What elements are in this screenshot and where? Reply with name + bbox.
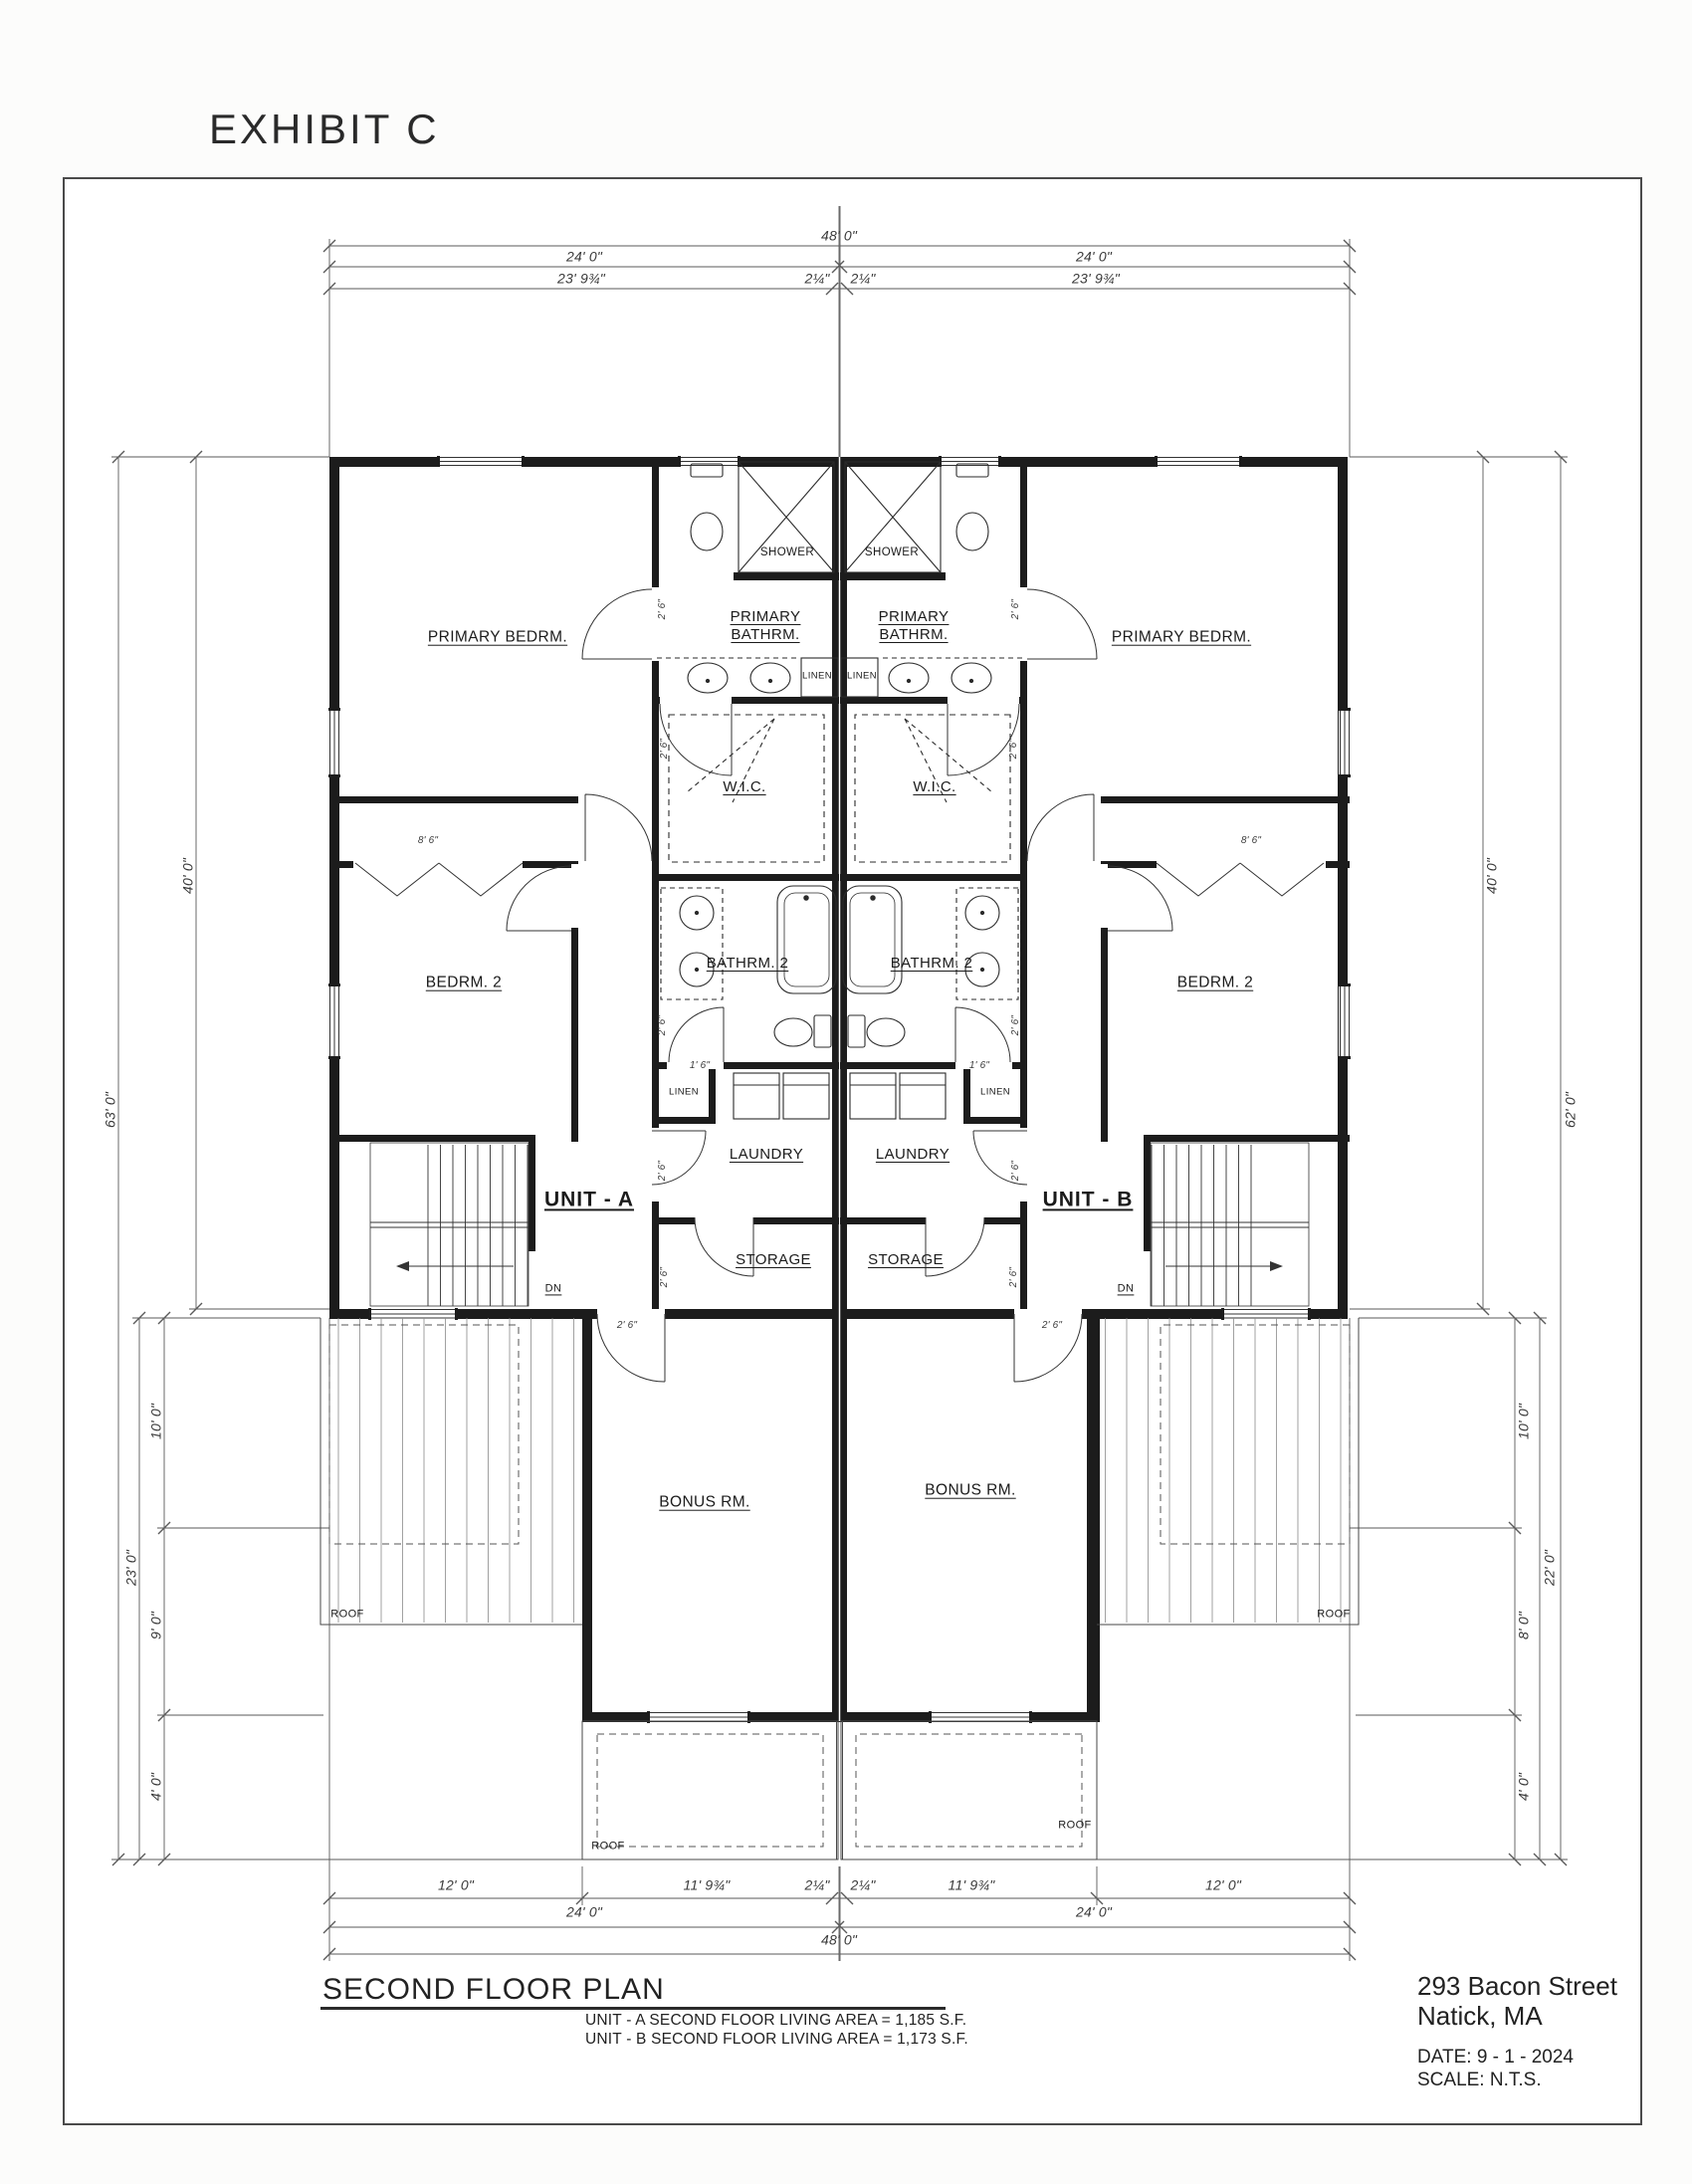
plan-title: SECOND FLOOR PLAN bbox=[322, 1973, 665, 2007]
scanned-floor-plan-page: EXHIBIT C bbox=[0, 0, 1692, 2184]
plan-title-underline bbox=[320, 2007, 946, 2010]
drawing-date: DATE: 9 - 1 - 2024 bbox=[1417, 2047, 1574, 2069]
unit-b-living-area: UNIT - B SECOND FLOOR LIVING AREA = 1,17… bbox=[585, 2031, 968, 2049]
drawing-scale: SCALE: N.T.S. bbox=[1417, 2070, 1542, 2091]
project-address-line2: Natick, MA bbox=[1417, 2001, 1543, 2032]
floor-plan-drawing bbox=[0, 0, 1692, 2184]
unit-a-living-area: UNIT - A SECOND FLOOR LIVING AREA = 1,18… bbox=[585, 2012, 966, 2030]
project-address-line1: 293 Bacon Street bbox=[1417, 1971, 1617, 2002]
